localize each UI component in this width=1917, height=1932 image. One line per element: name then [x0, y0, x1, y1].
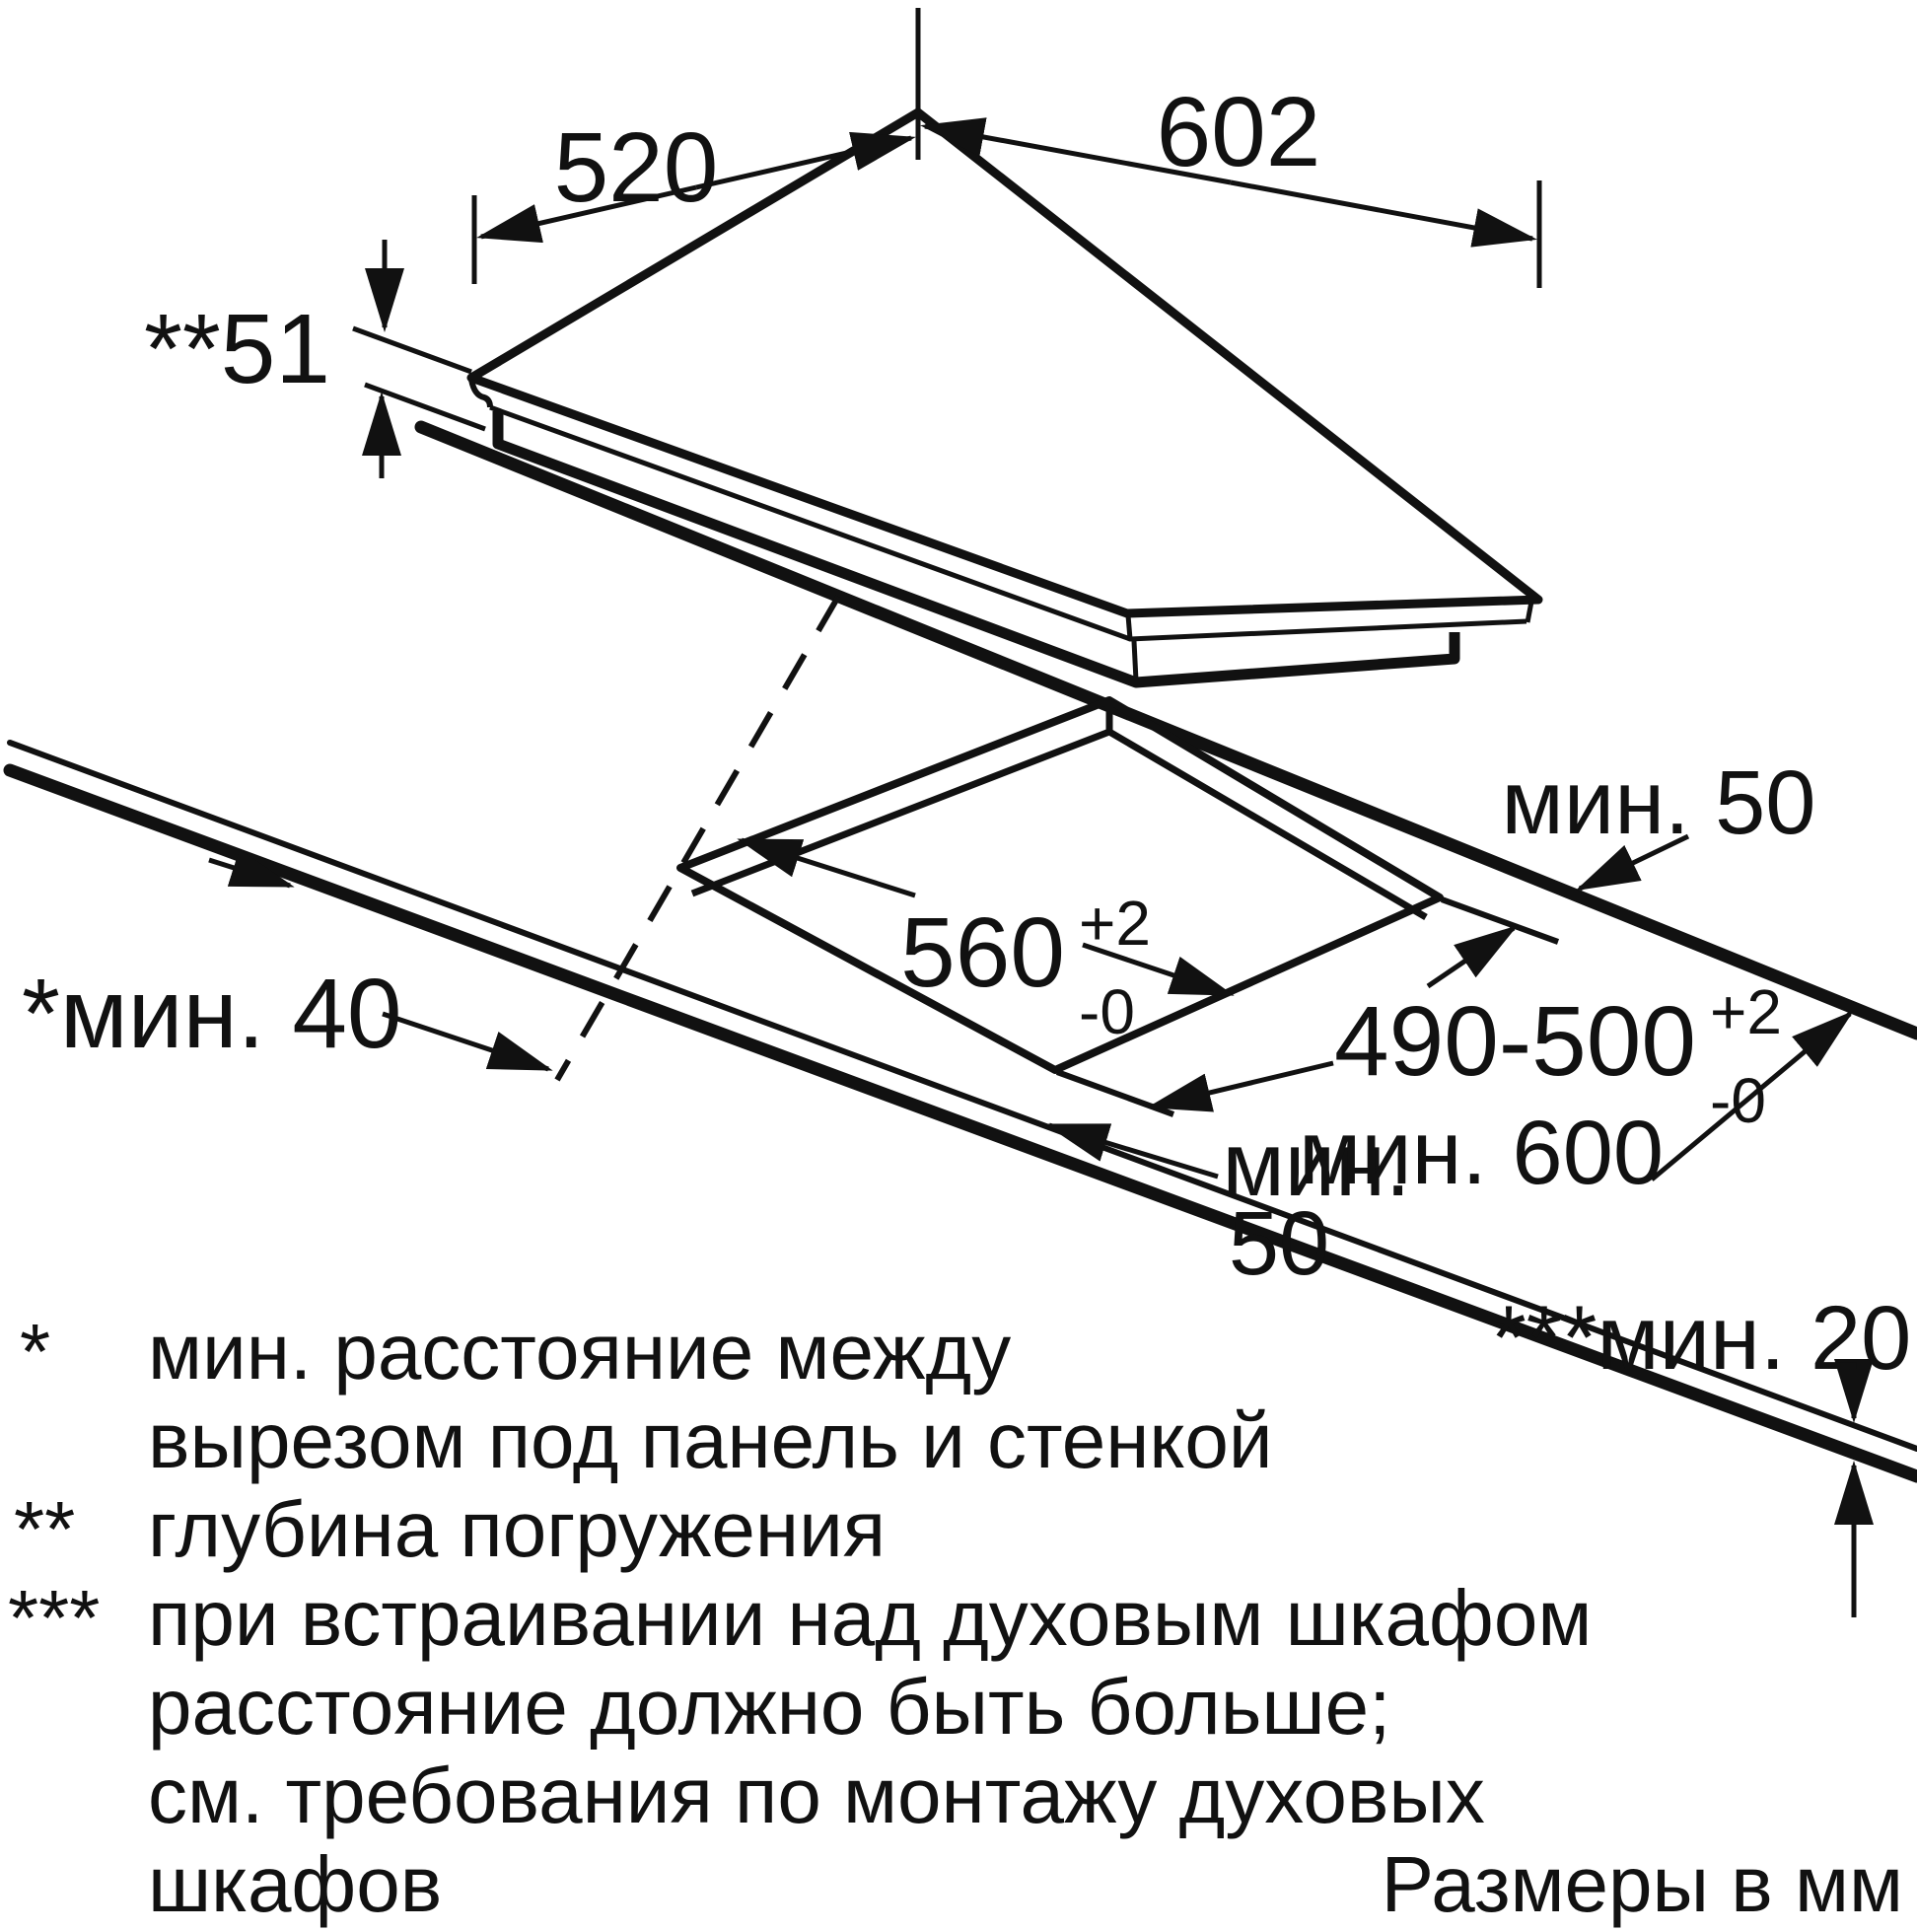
footnote-text: мин. расстояние между: [148, 1308, 1011, 1395]
min50-bottom-label-line2: 50: [1229, 1193, 1329, 1294]
footnote-text: шкафов: [148, 1840, 442, 1928]
min40-label: *мин. 40: [22, 959, 402, 1069]
footnote-text: расстояние должно быть больше;: [148, 1663, 1390, 1751]
installation-diagram: 520 602 **51 560 +2 -0 490-500 +2 -0 мин…: [0, 0, 1917, 1932]
extension-line: [1057, 1072, 1173, 1114]
min20-label: ***мин. 20: [1491, 1288, 1911, 1389]
diagram-canvas: 520 602 **51 560 +2 -0 490-500 +2 -0 мин…: [0, 0, 1917, 1932]
projection-dashed-line: [557, 597, 838, 1080]
min50-right-label: мин. 50: [1502, 752, 1816, 853]
footnote-text: см. требования по монтажу духовых: [148, 1752, 1485, 1839]
dim-arrow-min40: [383, 1014, 548, 1069]
footnote-text: при встраивании над духовым шкафом: [148, 1574, 1592, 1662]
footnote-text: вырезом под панель и стенкой: [148, 1396, 1273, 1484]
min600-label: мин. 600: [1299, 1103, 1664, 1203]
cutout-opening-rim: [680, 700, 1440, 1070]
footnote-marker: **: [14, 1485, 75, 1573]
cutout-width-tol-plus: +2: [1079, 888, 1151, 959]
units-note: Размеры в мм: [1382, 1840, 1903, 1928]
footnote-marker: *: [20, 1308, 50, 1395]
panel-glass-connector: [1527, 602, 1531, 622]
cutout-width-label: 560: [900, 897, 1065, 1008]
dim-520-label: 520: [554, 112, 719, 223]
dim-line-602: [1231, 182, 1532, 239]
cutout-width-tol-minus: -0: [1079, 976, 1135, 1047]
dim-arrow-490-500: [1428, 928, 1514, 986]
cutout-depth-tol-plus: +2: [1710, 976, 1782, 1047]
dim-arrow-490-500: [1152, 1063, 1333, 1107]
footnote-marker: ***: [8, 1574, 100, 1662]
footnotes: * мин. расстояние между вырезом под пане…: [8, 1308, 1903, 1928]
reference-line: [353, 328, 471, 372]
footnote-text: глубина погружения: [148, 1485, 886, 1573]
cutout-depth-label: 490-500: [1334, 986, 1696, 1097]
panel-body-connector: [1134, 641, 1136, 680]
panel-glass-connector: [1128, 615, 1130, 639]
dim-602-label: 602: [1157, 77, 1321, 187]
dim-51-label: **51: [144, 294, 330, 404]
